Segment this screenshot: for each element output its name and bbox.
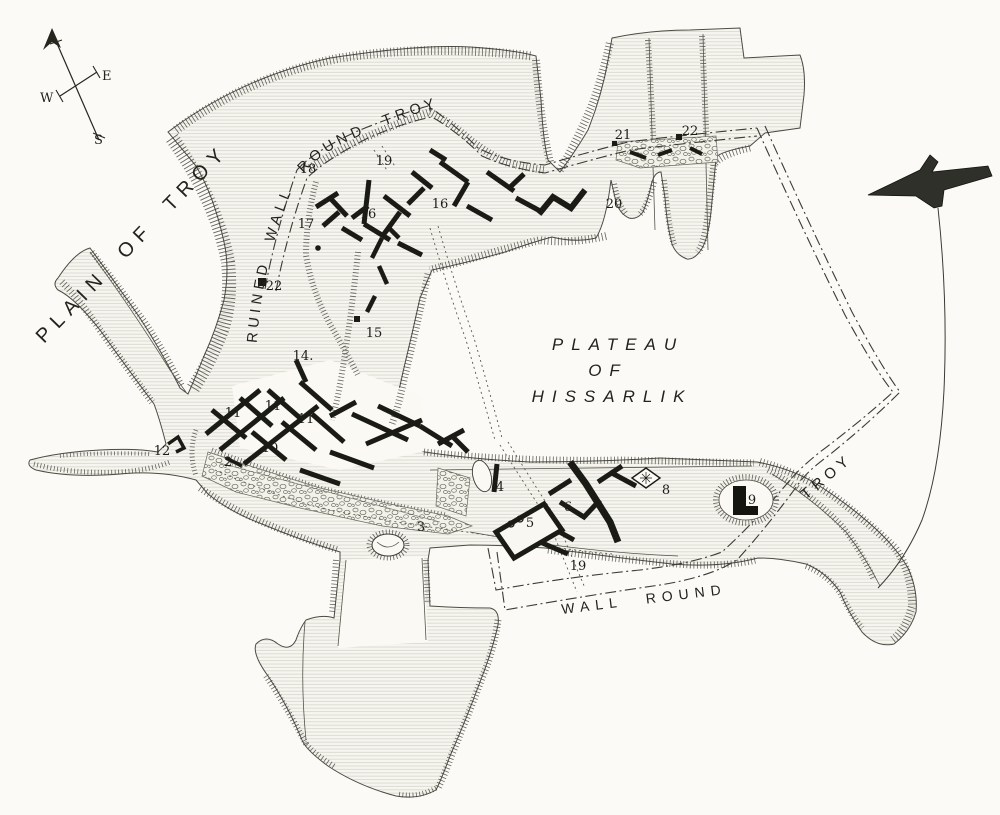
- small-square-15: [354, 316, 360, 322]
- site-number-8: 8: [662, 483, 670, 498]
- site-number-12: 12: [154, 444, 171, 459]
- plateau-line-3: HISSARLIK: [532, 387, 693, 406]
- site-number-15: 15: [366, 326, 383, 341]
- hissarlik-map-page: E W S PLAIN OF TROY RUINED WALL ROUND TR…: [0, 0, 1000, 815]
- site-number-22w: 22: [266, 279, 283, 294]
- site-number-5: 5: [526, 516, 534, 531]
- circular-pit: [372, 534, 404, 556]
- site-number-18: 18: [300, 162, 317, 177]
- site-number-22n: 22: [682, 124, 699, 139]
- wall-round-label: WALL ROUND: [560, 581, 727, 617]
- compass-south-label: S: [94, 133, 103, 148]
- stream-arrow-icon: [868, 155, 992, 588]
- plateau-label: PLATEAU OF HISSARLIK: [532, 335, 693, 406]
- site-number-6: 6: [564, 500, 572, 515]
- site-number-3: 3: [417, 520, 425, 535]
- plateau-line-2: OF: [588, 361, 628, 380]
- plateau-line-1: PLATEAU: [552, 335, 684, 354]
- site-number-9: 9: [748, 493, 756, 508]
- site-number-19s: 19: [570, 559, 587, 574]
- wall-line-east-outer: [757, 128, 893, 480]
- site-number-16a: 16: [360, 207, 377, 222]
- site-number-20: 20: [606, 197, 623, 212]
- hissarlik-map: E W S PLAIN OF TROY RUINED WALL ROUND TR…: [0, 0, 1000, 815]
- site-number-19n: 19: [376, 154, 393, 169]
- compass-rose: E W S: [40, 28, 112, 148]
- site-number-11c: 11: [298, 412, 315, 427]
- compass-east-label: E: [102, 69, 112, 84]
- feature-9-block: [719, 480, 773, 520]
- small-circle-17: [315, 245, 321, 251]
- site-number-11a: 11: [225, 406, 242, 421]
- stream-line: [878, 208, 945, 588]
- site-number-14: 14.: [293, 349, 314, 364]
- site-number-17: 17: [298, 217, 315, 232]
- site-number-21: 21: [615, 128, 632, 143]
- site-number-16b: 16: [432, 197, 449, 212]
- compass-west-label: W: [40, 91, 54, 106]
- site-number-2: 2: [224, 455, 232, 470]
- spur-clearing: [338, 556, 428, 648]
- site-number-4: 4: [496, 480, 504, 495]
- site-number-11b: 11: [265, 399, 282, 414]
- wall-line-east-inner: [765, 126, 900, 486]
- site-number-10: 10: [262, 441, 279, 456]
